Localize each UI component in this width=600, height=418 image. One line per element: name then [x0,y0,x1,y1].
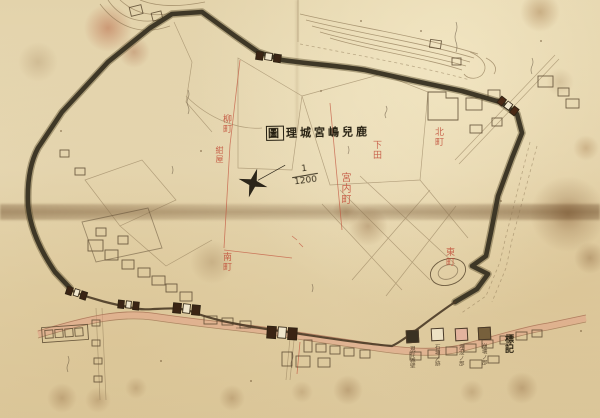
map-title: 圖理城宮嶋兒鹿 [266,123,370,141]
legend-label: 埋没ノ部 [457,344,463,366]
place-label: 宮内町 [337,172,352,205]
compass-star-icon [234,154,285,205]
legend-swatch-existing-wall [406,330,420,344]
wall-gates [65,51,519,340]
gate-icon [256,51,282,62]
gate-icon [65,286,87,300]
map-drawing [0,0,600,418]
legend-header: 標記 [502,334,515,354]
legend-swatch-collapsed [478,327,492,341]
gate-icon [173,303,201,316]
map-title-boxed-char: 圖 [266,126,284,141]
place-label: 東町 [443,247,456,267]
legend-label: 石垣ノ跡 [433,344,439,366]
antique-castle-map: 圖理城宮嶋兒鹿 1 1200 柳町 紺屋 宮内町 下田 北町 東町 南町 標記 … [0,0,600,418]
place-label: 柳町 [220,114,233,134]
legend-label: 崩壊ノ部 [480,343,486,365]
legend-swatch-stone-trace [431,328,445,342]
micro-annotations [67,22,533,372]
legend-label: 現存城壁 [408,346,414,368]
place-label: 南町 [220,252,233,272]
place-label: 北町 [432,127,445,147]
scale-fraction: 1 1200 [291,163,319,187]
gate-icon [118,300,140,310]
legend-swatch-buried [455,328,469,342]
place-label: 下田 [370,140,383,160]
place-label: 紺屋 [214,146,225,164]
map-title-text: 理城宮嶋兒鹿 [286,125,370,139]
gate-icon [267,326,298,340]
